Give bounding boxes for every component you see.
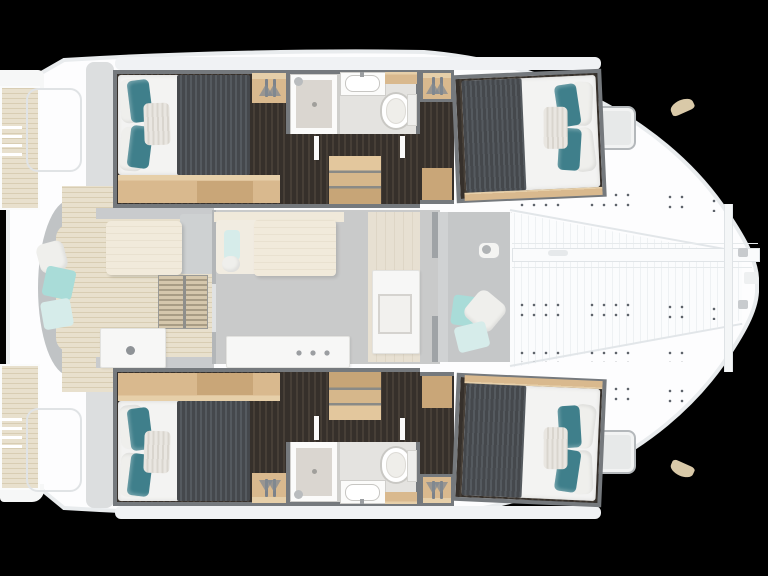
transom-locker-outline-top xyxy=(26,88,82,172)
bowsprit-line-lower xyxy=(512,267,752,268)
salon-aft-door-gap xyxy=(212,284,216,332)
shower-head-icon xyxy=(294,77,303,86)
aft-cabin-blanket xyxy=(177,401,250,501)
fwd-cabin-blanket xyxy=(462,78,527,193)
winch-dot xyxy=(482,245,491,254)
cooktop-icon xyxy=(290,344,332,358)
sink-icon xyxy=(345,75,380,92)
hanger-icon xyxy=(273,79,276,97)
trampoline-dots xyxy=(664,386,690,404)
aft-cabin-step xyxy=(197,181,253,203)
aft-cabin-blanket xyxy=(177,75,250,175)
shower-drain xyxy=(312,102,317,107)
forward-cabin xyxy=(451,373,606,507)
trampoline-dots xyxy=(586,300,636,322)
trampoline-dots xyxy=(664,192,690,212)
trampoline-dots xyxy=(516,300,568,322)
hanger-icons xyxy=(423,73,451,99)
trampoline-dots xyxy=(664,348,690,362)
shower-head-icon xyxy=(294,490,303,499)
hanger-icons xyxy=(423,477,451,503)
engine-hatch-grate xyxy=(158,275,208,329)
door-leaf-fwd xyxy=(400,136,405,158)
shower-drain xyxy=(312,469,317,474)
hanger-icons xyxy=(252,473,288,503)
hanger-icons xyxy=(252,73,288,103)
trampoline-dots xyxy=(708,304,720,320)
trampoline-dots xyxy=(586,348,636,362)
transom-locker-outline-bottom xyxy=(26,408,82,492)
port-hull-interior xyxy=(113,70,605,208)
fwd-pillow-striped xyxy=(543,427,567,469)
fwd-cabin-blanket xyxy=(462,383,527,498)
companionway-steps xyxy=(329,372,381,420)
bowsprit-line-upper xyxy=(512,243,758,244)
cockpit-table xyxy=(106,221,182,275)
deck-shadow-top xyxy=(115,57,601,70)
toilet-tank xyxy=(407,450,417,482)
toilet-shelf xyxy=(385,72,417,84)
companionway-steps xyxy=(329,156,381,204)
hanger-icon xyxy=(440,481,443,499)
ladder-icon-bottom xyxy=(0,418,22,448)
toilet-shelf xyxy=(385,492,417,504)
door-leaf-aft xyxy=(314,416,319,440)
forward-cabin xyxy=(451,69,606,203)
cockpit-sink-icon xyxy=(126,346,135,355)
aft-cabin-step xyxy=(197,373,253,395)
dinette-pillow xyxy=(222,256,240,272)
door-leaf-fwd xyxy=(400,418,405,440)
nav-cabinet-panel xyxy=(378,294,412,334)
aft-pillow-striped xyxy=(143,103,170,146)
bow-fitting-top xyxy=(738,248,748,257)
fwd-pillow-striped xyxy=(543,107,567,149)
trampoline-dots xyxy=(516,348,568,362)
fwd-lobby-bench xyxy=(422,168,452,200)
bow-fitting-bottom xyxy=(738,300,748,309)
cockpit-cabinet xyxy=(180,214,214,274)
aft-wardrobe xyxy=(252,473,288,503)
catamaran-floor-plan xyxy=(0,0,768,576)
bow-tip-plate xyxy=(744,272,758,284)
bowsprit-roller xyxy=(548,250,568,256)
forward-crossbeam xyxy=(724,204,733,372)
starboard-hull-interior xyxy=(113,368,605,506)
toilet-tank xyxy=(407,94,417,126)
sink-faucet xyxy=(360,499,364,504)
salon-table xyxy=(254,220,336,276)
aft-pillow-striped xyxy=(143,431,170,474)
fwd-lobby-bench xyxy=(422,376,452,408)
hanger-icon xyxy=(273,479,276,497)
deck-shadow-bottom xyxy=(115,506,601,519)
aft-wardrobe xyxy=(252,73,288,103)
helm-step-top xyxy=(86,62,114,206)
trampoline-dots xyxy=(664,302,690,322)
cockpit-pillow-pale xyxy=(40,298,74,331)
trampoline-dots xyxy=(708,196,720,212)
fwd-wardrobe xyxy=(420,474,454,506)
fwd-cockpit-seat-edge xyxy=(438,212,448,362)
cockpit-pillow-aqua xyxy=(41,265,77,301)
sink-faucet xyxy=(360,72,364,77)
hanger-icon xyxy=(440,77,443,95)
ladder-icon-top xyxy=(0,126,22,156)
door-leaf-aft xyxy=(314,136,319,160)
fwd-wardrobe xyxy=(420,70,454,102)
